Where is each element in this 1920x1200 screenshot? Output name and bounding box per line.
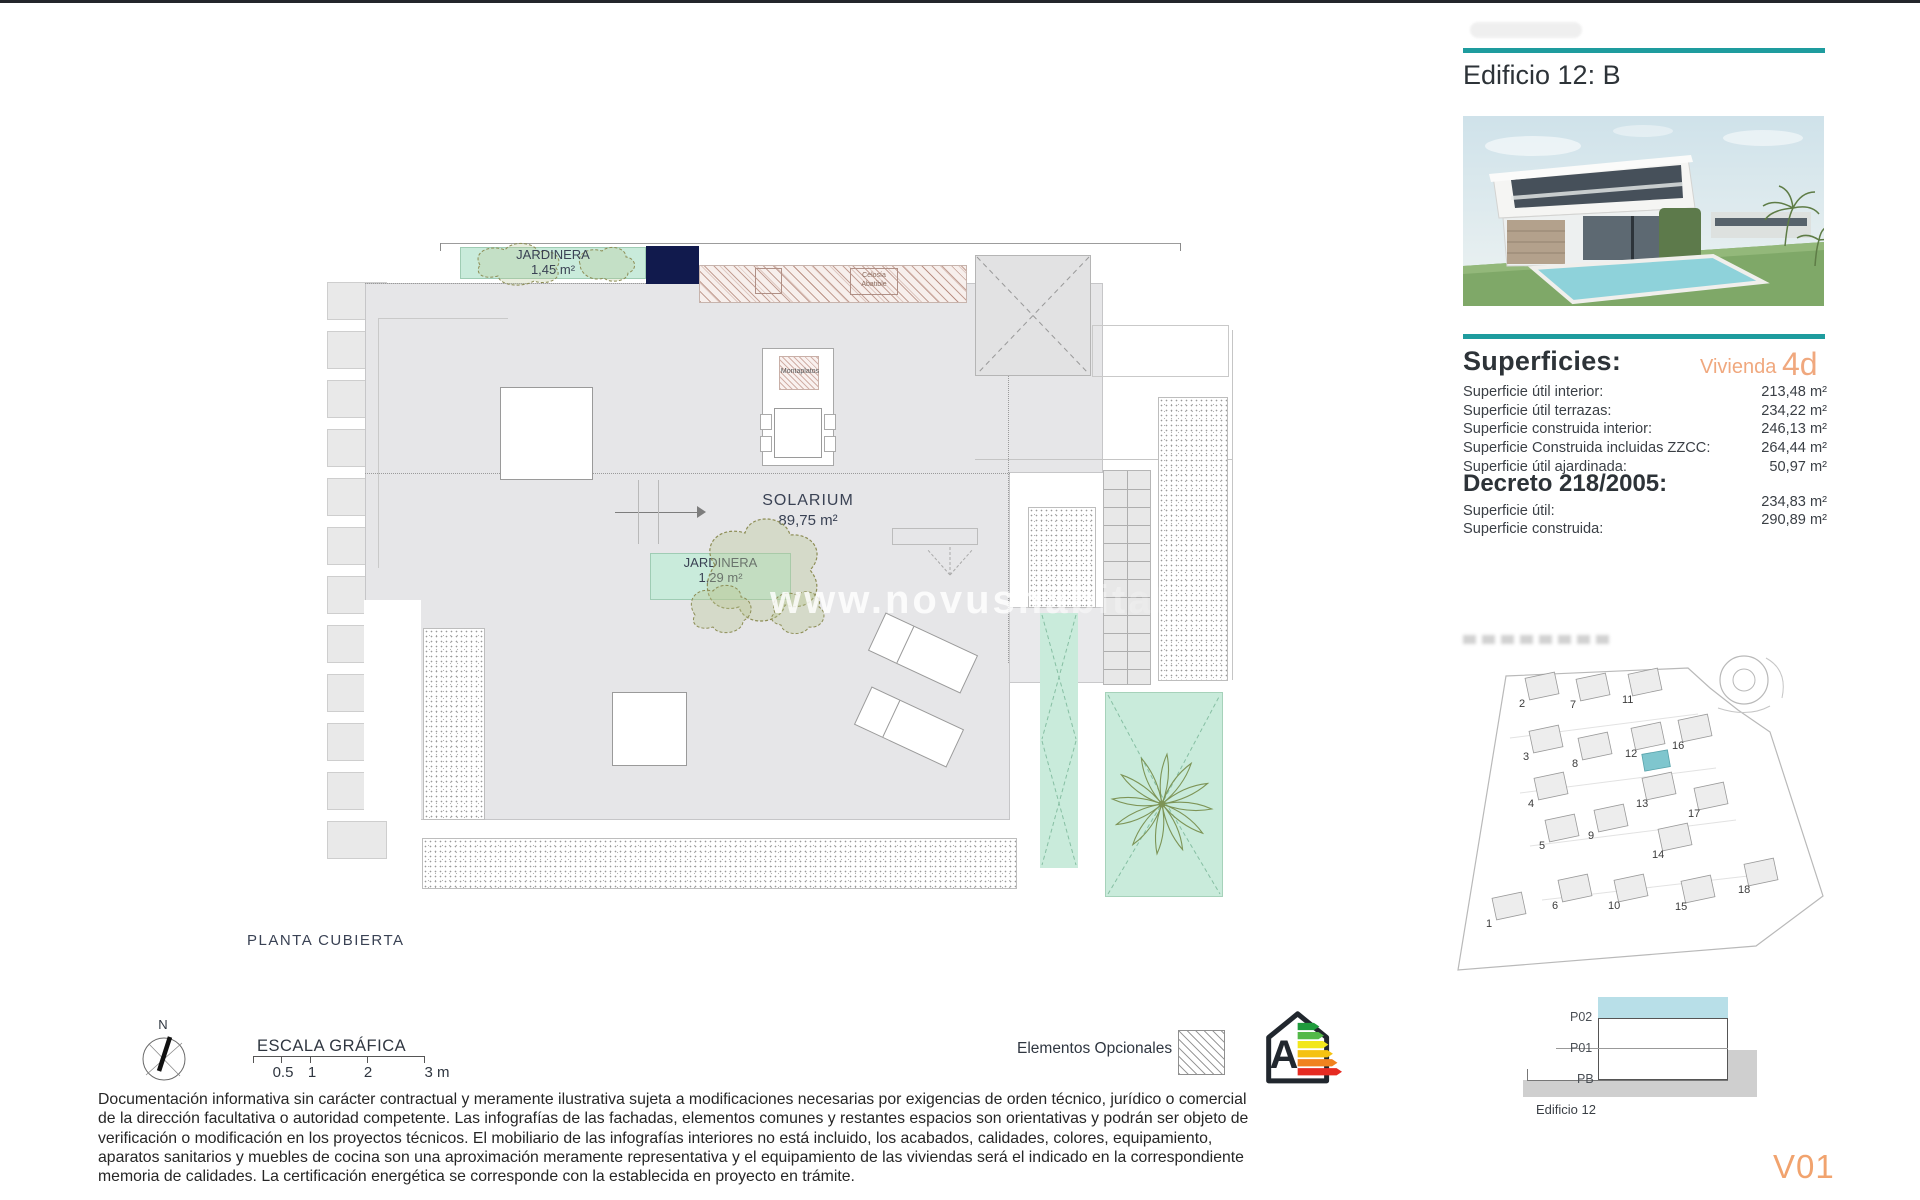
gravel-bottom <box>422 838 1017 889</box>
gravel-left-block <box>423 628 485 820</box>
decreto-label-2: Superficie construida: <box>1463 521 1603 537</box>
site-plot-number: 10 <box>1608 900 1620 912</box>
site-building <box>1614 874 1648 902</box>
energy-bar <box>1298 1050 1333 1057</box>
section-left-tick <box>1527 1069 1528 1080</box>
shaft-x-diagonals <box>975 255 1091 376</box>
site-building <box>1681 875 1715 903</box>
chair-left-2 <box>760 436 772 452</box>
building-title: Edificio 12: B <box>1463 60 1621 91</box>
site-building <box>1658 823 1692 851</box>
energy-letter: A <box>1270 1033 1299 1077</box>
roof-notch-white <box>364 600 421 821</box>
skylight-1 <box>500 387 593 480</box>
decreto-title: Decreto 218/2005: <box>1463 470 1667 498</box>
site-building <box>1628 668 1662 696</box>
palm-garden-art <box>1105 692 1223 897</box>
louver-slat <box>327 821 387 859</box>
section-building <box>1598 1018 1728 1080</box>
topright-faint-bar <box>1470 22 1582 38</box>
optional-elements-swatch <box>1178 1030 1225 1075</box>
section-ground-step <box>1728 1050 1757 1080</box>
superficies-row-value: 213,48 m² <box>1761 384 1827 403</box>
superficies-row-value: 234,22 m² <box>1761 403 1827 422</box>
site-plot-number: 11 <box>1622 694 1633 706</box>
superficies-row-label: Superficie Construida incluidas ZZCC: <box>1463 440 1710 459</box>
disclaimer-line: de la dirección facultativa o autoridad … <box>98 1109 1248 1128</box>
version-number: V01 <box>1773 1148 1835 1186</box>
site-highlighted-unit <box>1642 750 1671 771</box>
dimension-tick-right <box>1180 243 1181 251</box>
gravel-inner <box>1028 507 1096 608</box>
decreto-value-2: 290,89 m² <box>1700 512 1827 528</box>
right-boundary-line <box>1232 330 1233 680</box>
vivienda-code: 4d <box>1782 346 1818 383</box>
site-plot-number: 18 <box>1738 884 1750 896</box>
dimension-tick-left <box>440 243 441 251</box>
palm-frond <box>1160 800 1204 837</box>
site-building <box>1631 722 1665 750</box>
site-building <box>1492 892 1526 920</box>
superficies-title: Superficies: <box>1463 346 1621 377</box>
section-ground-line <box>1527 1080 1728 1081</box>
decreto-label-1: Superficie útil: <box>1463 503 1555 519</box>
superficies-row: Superficie construida interior:246,13 m² <box>1463 421 1827 440</box>
stair-center-line <box>1127 471 1128 684</box>
jardinera-top-name: JARDINERA <box>460 248 646 263</box>
site-plot-number: 16 <box>1672 740 1684 752</box>
chair-left-1 <box>760 414 772 430</box>
site-plot-number: 4 <box>1528 798 1534 810</box>
pergola-strip <box>699 265 967 303</box>
site-plot-number: 1 <box>1486 918 1492 930</box>
parapet-line-box <box>378 318 508 568</box>
site-plot-number: 7 <box>1570 699 1576 711</box>
site-plot-number: 9 <box>1588 830 1594 842</box>
superficies-row-label: Superficie útil interior: <box>1463 384 1603 403</box>
scale-title: ESCALA GRÁFICA <box>257 1037 406 1056</box>
superficies-row: Superficie útil terrazas:234,22 m² <box>1463 403 1827 422</box>
section-roof-highlight <box>1598 997 1728 1018</box>
plan-caption: PLANTA CUBIERTA <box>247 932 405 949</box>
staircase <box>1103 470 1151 685</box>
site-building <box>1545 814 1579 842</box>
vivienda-label: Vivienda <box>1700 356 1776 379</box>
superficies-row-value: 246,13 m² <box>1761 421 1827 440</box>
site-plot-number: 8 <box>1572 758 1578 770</box>
chimney-block <box>646 246 699 284</box>
dining-table <box>774 408 822 458</box>
palm-tree <box>1112 754 1212 854</box>
site-building <box>1694 782 1728 810</box>
energy-bar <box>1298 1059 1338 1066</box>
disclaimer-line: memoria de calidades. La certificación e… <box>98 1167 1248 1186</box>
palm-frond <box>1158 761 1195 805</box>
stair-rail-1 <box>638 480 639 544</box>
site-building <box>1678 714 1712 742</box>
planting-squiggles-mid <box>655 495 845 675</box>
section-ground <box>1523 1080 1757 1097</box>
site-building <box>1529 725 1563 753</box>
floor-plan: JARDINERA 1,45 m² Celosía Abatible Monta… <box>0 0 1260 960</box>
site-building <box>1594 804 1628 832</box>
palm-trunk <box>1159 801 1165 807</box>
site-plot-number: 5 <box>1539 840 1545 852</box>
site-building <box>1578 732 1612 760</box>
scale-tick-3: 3 m <box>424 1064 449 1081</box>
chair-right-2 <box>824 436 836 452</box>
section-caption: Edificio 12 <box>1536 1102 1596 1117</box>
optional-elements-label: Elementos Opcionales <box>1017 1040 1172 1058</box>
awning-box <box>892 528 978 545</box>
site-building <box>1534 772 1568 800</box>
palm-frond <box>1119 771 1163 808</box>
site-building <box>1525 672 1559 700</box>
superficies-row-label: Superficie útil terrazas: <box>1463 403 1611 422</box>
jardinera-top-area: 1,45 m² <box>460 263 646 278</box>
energy-bar <box>1298 1068 1342 1075</box>
section-diagram: P02 P01 PB Edificio 12 <box>1520 995 1770 1120</box>
dashed-floor-below-h <box>365 473 1010 474</box>
site-plot-number: 15 <box>1675 901 1687 913</box>
site-plot-number: 17 <box>1688 808 1700 820</box>
site-plot-number: 13 <box>1636 798 1648 810</box>
chair-right-1 <box>824 414 836 430</box>
north-arrow-icon: N <box>136 1015 194 1087</box>
site-building <box>1744 858 1778 886</box>
north-label: N <box>158 1017 167 1032</box>
disclaimer-text: Documentación informativa sin carácter c… <box>98 1090 1248 1186</box>
energy-rating-icon: A <box>1256 1000 1342 1092</box>
section-label-pb: PB <box>1577 1072 1594 1086</box>
section-label-p02: P02 <box>1570 1010 1592 1024</box>
skylight-2 <box>612 692 687 766</box>
site-plot-number: 12 <box>1625 748 1637 760</box>
superficies-row: Superficie útil interior:213,48 m² <box>1463 384 1827 403</box>
pergola-label-2: Abatible <box>851 280 897 289</box>
scale-tick-05: 0.5 <box>273 1064 294 1081</box>
villa-render-image <box>1463 116 1824 306</box>
pergola-label-1: Celosía <box>851 271 897 280</box>
superficies-row-value: 50,97 m² <box>1769 459 1827 478</box>
scale-tick-2: 2 <box>364 1064 372 1081</box>
site-plan-map: 123456789101112131415161718 <box>1448 618 1868 998</box>
superficies-row-label: Superficie construida interior: <box>1463 421 1652 440</box>
green-strip-dashes <box>1040 613 1078 868</box>
pergola-label-box: Celosía Abatible <box>850 268 898 295</box>
superficies-table: Superficie útil interior:213,48 m²Superf… <box>1463 384 1827 477</box>
site-building <box>1576 673 1610 701</box>
site-plot-number: 3 <box>1523 751 1529 763</box>
section-label-p01: P01 <box>1570 1041 1592 1055</box>
site-plot-number: 2 <box>1519 698 1525 710</box>
palm-frond <box>1129 802 1166 846</box>
site-building <box>1558 874 1592 902</box>
teal-rule-top <box>1463 48 1825 53</box>
superficies-row-value: 264,44 m² <box>1761 440 1827 459</box>
teal-rule-mid <box>1463 334 1825 339</box>
decreto-value-1: 234,83 m² <box>1700 494 1827 510</box>
awning-fan <box>915 545 985 579</box>
energy-bar <box>1298 1032 1324 1039</box>
disclaimer-line: Documentación informativa sin carácter c… <box>98 1090 1248 1109</box>
site-plot-number: 6 <box>1552 900 1558 912</box>
jardinera-top-label: JARDINERA 1,45 m² <box>460 248 646 278</box>
gravel-right <box>1158 397 1228 681</box>
neighbor-outline-box <box>1092 325 1229 377</box>
pergola-inner-box <box>755 268 782 294</box>
superficies-row: Superficie Construida incluidas ZZCC:264… <box>1463 440 1827 459</box>
dumbwaiter-label: Montaplatos <box>772 368 828 375</box>
disclaimer-line: aparatos sanitarios y muebles de cocina … <box>98 1148 1248 1167</box>
scale-tick-1: 1 <box>308 1064 316 1081</box>
site-plot-number: 14 <box>1652 849 1664 861</box>
brochure-page: JARDINERA 1,45 m² Celosía Abatible Monta… <box>0 0 1920 1200</box>
energy-bar <box>1298 1041 1329 1048</box>
disclaimer-line: verificación o modificación en los proye… <box>98 1129 1248 1148</box>
